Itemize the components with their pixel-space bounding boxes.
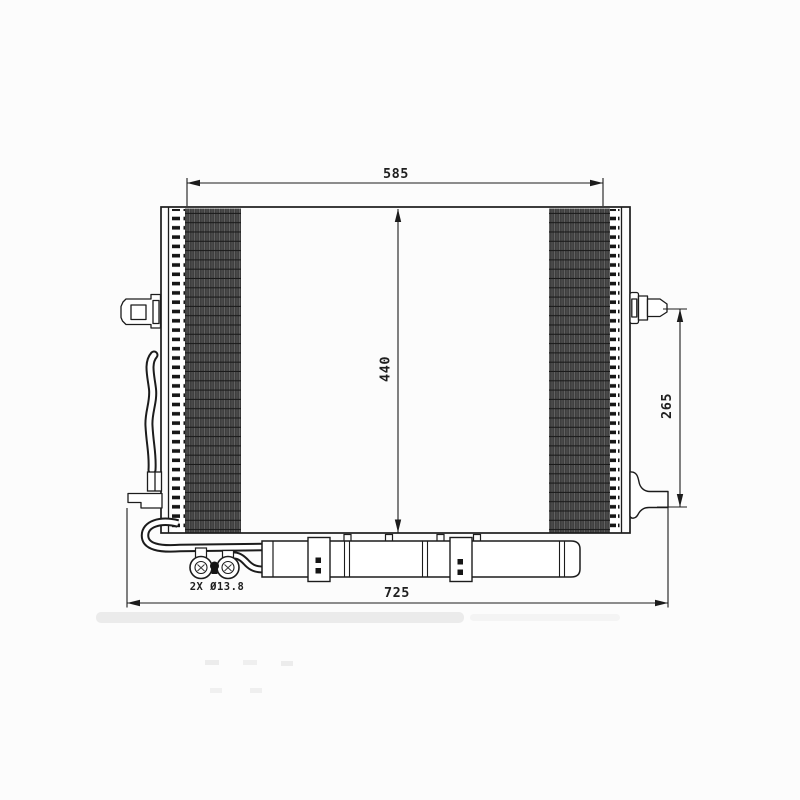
- arrow-up: [677, 309, 683, 322]
- left-lower-bracket: [128, 494, 162, 509]
- drier-clamp-right: [450, 538, 472, 582]
- port-bolt: [210, 562, 219, 571]
- left-pipe-fitting: [148, 472, 162, 491]
- arrow-up: [395, 209, 401, 222]
- right-upper-connector: [630, 293, 667, 324]
- bracket-window: [153, 301, 159, 324]
- arrow-left: [187, 180, 200, 186]
- dimension-440: 440: [378, 209, 402, 533]
- right-lower-bracket: [630, 472, 668, 518]
- drawing-canvas: 585 440 265 725 2X Ø13.8: [0, 0, 800, 800]
- receiver-drier: [262, 535, 580, 582]
- arrow-down: [677, 494, 683, 507]
- left-upper-bracket: [121, 295, 161, 329]
- scan-artifact: [96, 612, 620, 693]
- port-diameter-note: 2X Ø13.8: [190, 581, 245, 593]
- arrow-right: [655, 600, 668, 606]
- right-tube-ends: [610, 209, 620, 532]
- right-fin-band: [549, 209, 610, 533]
- arrow-left: [127, 600, 140, 606]
- service-ports: [190, 557, 239, 579]
- left-fin-band: [185, 209, 241, 533]
- bracket-hole: [131, 305, 146, 320]
- dim-label-585: 585: [383, 166, 409, 182]
- left-tube-ends: [172, 209, 185, 532]
- dim-label-440: 440: [378, 356, 394, 382]
- drier-clamp-left: [308, 538, 330, 582]
- arrow-down: [395, 520, 401, 533]
- arrow-right: [590, 180, 603, 186]
- dimension-585: 585: [187, 166, 603, 206]
- dimension-265: 265: [657, 309, 687, 507]
- condenser-technical-drawing: 585 440 265 725 2X Ø13.8: [0, 0, 800, 800]
- left-side-pipe: [149, 355, 154, 470]
- condenser-core: [161, 207, 630, 533]
- dim-label-725: 725: [384, 585, 410, 601]
- dim-label-265: 265: [659, 393, 675, 419]
